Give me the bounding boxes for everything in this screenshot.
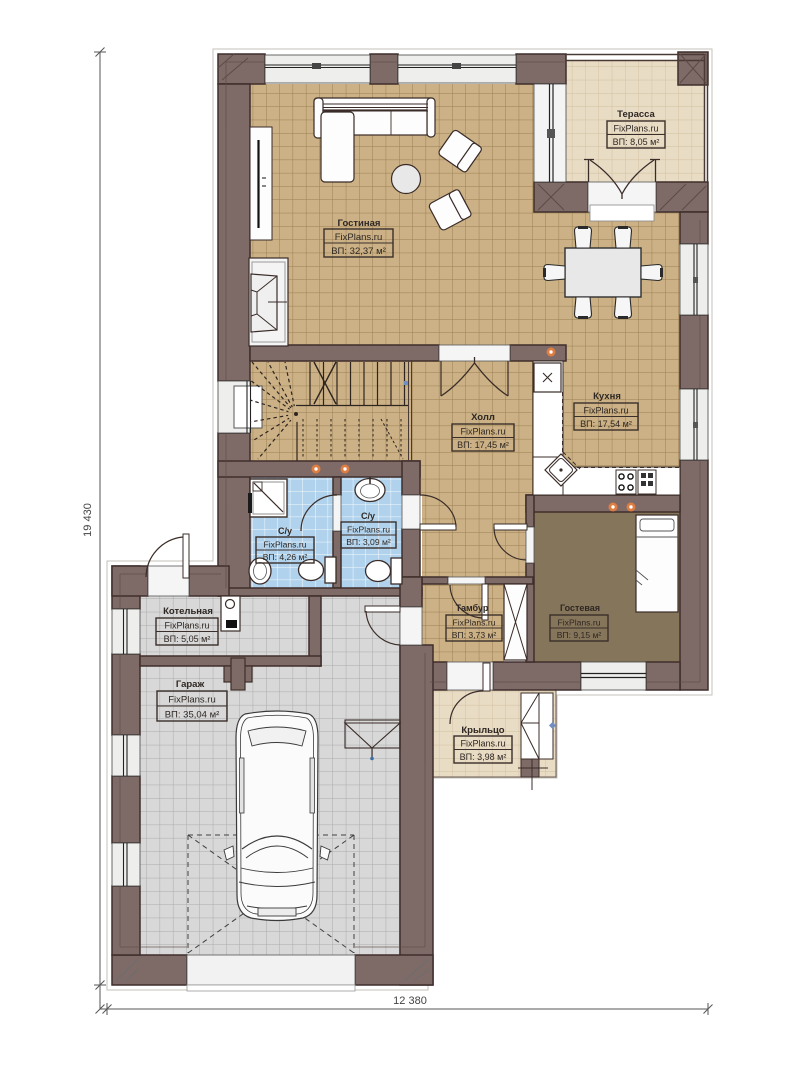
- svg-text:FixPlans.ru: FixPlans.ru: [168, 695, 216, 706]
- svg-text:ВП: 35,04 м²: ВП: 35,04 м²: [165, 710, 220, 721]
- svg-text:ВП: 17,54 м²: ВП: 17,54 м²: [580, 419, 632, 429]
- svg-text:FixPlans.ru: FixPlans.ru: [453, 618, 496, 628]
- svg-text:ВП: 17,45 м²: ВП: 17,45 м²: [457, 440, 509, 450]
- svg-text:ВП: 3,98 м²: ВП: 3,98 м²: [460, 752, 507, 762]
- svg-text:19 430: 19 430: [82, 503, 94, 537]
- svg-text:FixPlans.ru: FixPlans.ru: [558, 618, 601, 628]
- svg-text:Гостевая: Гостевая: [560, 603, 600, 613]
- svg-text:С/у: С/у: [361, 511, 375, 521]
- svg-text:Тамбур: Тамбур: [456, 603, 489, 613]
- svg-text:ВП: 3,73 м²: ВП: 3,73 м²: [452, 630, 497, 640]
- svg-text:Крыльцо: Крыльцо: [461, 725, 504, 736]
- svg-text:Кухня: Кухня: [593, 391, 621, 402]
- svg-text:Холл: Холл: [471, 412, 495, 423]
- svg-text:Гостиная: Гостиная: [338, 218, 381, 229]
- svg-text:ВП: 9,15 м²: ВП: 9,15 м²: [557, 630, 602, 640]
- svg-text:Терасса: Терасса: [617, 109, 655, 120]
- svg-text:FixPlans.ru: FixPlans.ru: [583, 406, 628, 416]
- svg-text:Котельная: Котельная: [163, 606, 213, 617]
- svg-text:12 380: 12 380: [393, 995, 427, 1007]
- svg-text:FixPlans.ru: FixPlans.ru: [347, 525, 390, 535]
- svg-text:С/у: С/у: [278, 526, 292, 536]
- svg-text:FixPlans.ru: FixPlans.ru: [164, 621, 209, 631]
- svg-text:ВП: 3,09 м²: ВП: 3,09 м²: [346, 537, 391, 547]
- svg-text:ВП: 32,37 м²: ВП: 32,37 м²: [331, 246, 386, 257]
- svg-text:ВП: 4,26 м²: ВП: 4,26 м²: [263, 552, 308, 562]
- svg-text:FixPlans.ru: FixPlans.ru: [460, 739, 505, 749]
- svg-text:ВП: 5,05 м²: ВП: 5,05 м²: [164, 634, 211, 644]
- svg-text:ВП: 8,05 м²: ВП: 8,05 м²: [613, 137, 660, 147]
- svg-text:Гараж: Гараж: [176, 679, 205, 690]
- svg-text:FixPlans.ru: FixPlans.ru: [264, 540, 307, 550]
- svg-text:FixPlans.ru: FixPlans.ru: [613, 124, 658, 134]
- svg-text:FixPlans.ru: FixPlans.ru: [460, 427, 505, 437]
- svg-text:FixPlans.ru: FixPlans.ru: [335, 232, 383, 243]
